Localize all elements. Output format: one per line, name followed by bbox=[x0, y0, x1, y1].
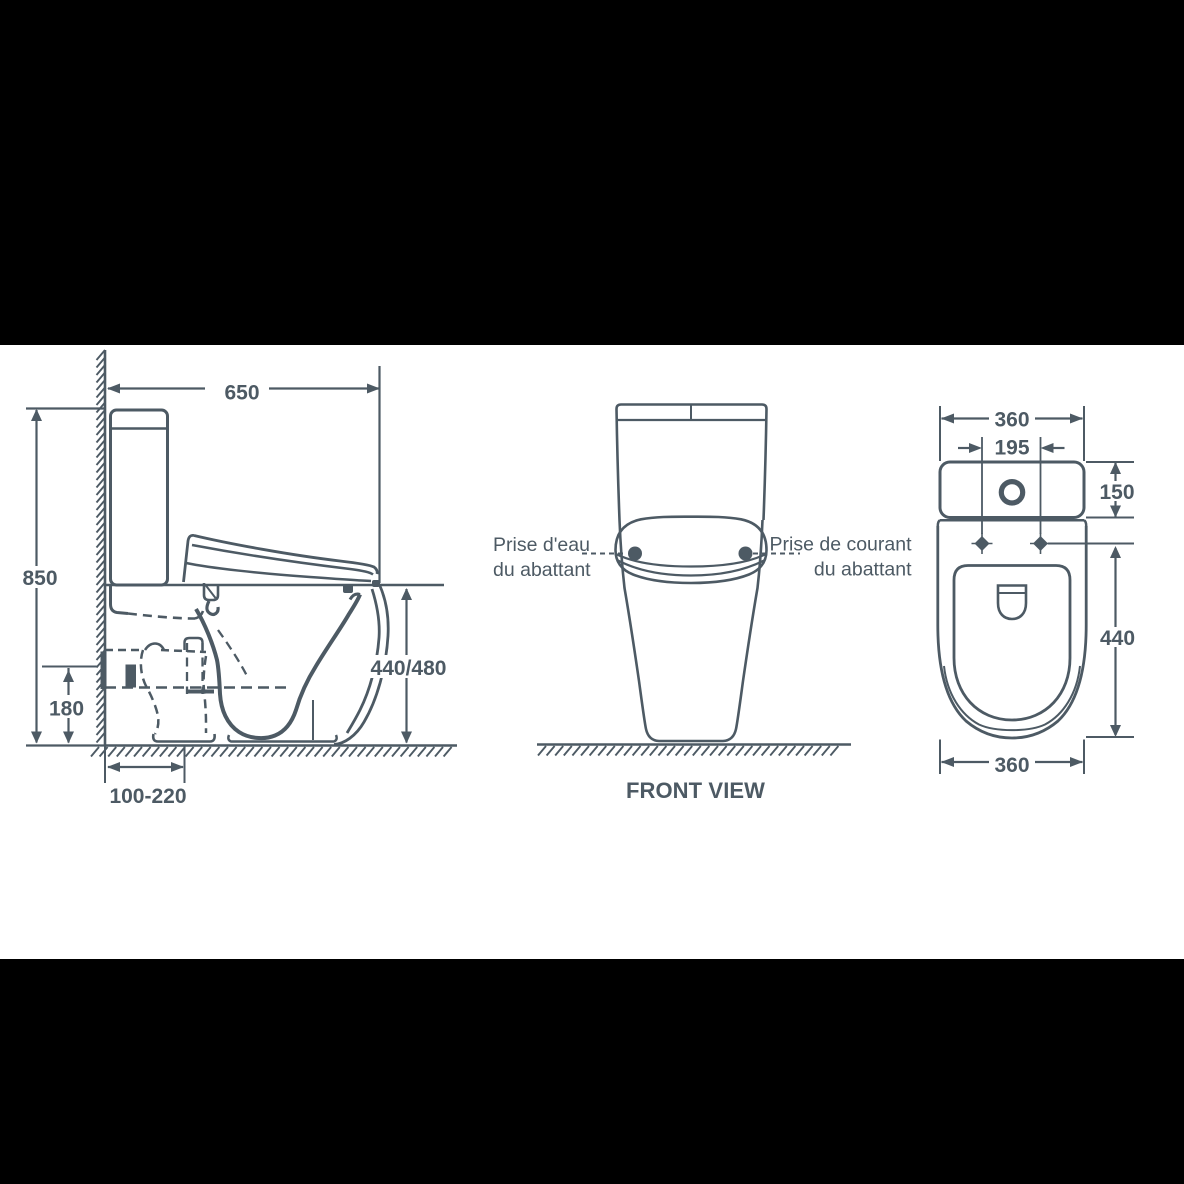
svg-text:du abattant: du abattant bbox=[493, 559, 591, 581]
svg-text:360: 360 bbox=[994, 754, 1029, 777]
svg-text:180: 180 bbox=[49, 698, 84, 721]
svg-text:360: 360 bbox=[994, 409, 1029, 432]
svg-text:650: 650 bbox=[224, 382, 259, 405]
svg-text:440: 440 bbox=[1100, 627, 1135, 650]
svg-text:du abattant: du abattant bbox=[814, 559, 912, 581]
svg-text:440/480: 440/480 bbox=[371, 657, 447, 680]
svg-text:150: 150 bbox=[1099, 481, 1134, 504]
svg-text:Prise de courant: Prise de courant bbox=[770, 534, 913, 556]
svg-text:195: 195 bbox=[994, 437, 1029, 460]
svg-text:FRONT VIEW: FRONT VIEW bbox=[626, 778, 765, 803]
svg-text:850: 850 bbox=[22, 567, 57, 590]
svg-text:100-220: 100-220 bbox=[109, 785, 186, 808]
svg-text:Prise d'eau: Prise d'eau bbox=[493, 534, 590, 556]
